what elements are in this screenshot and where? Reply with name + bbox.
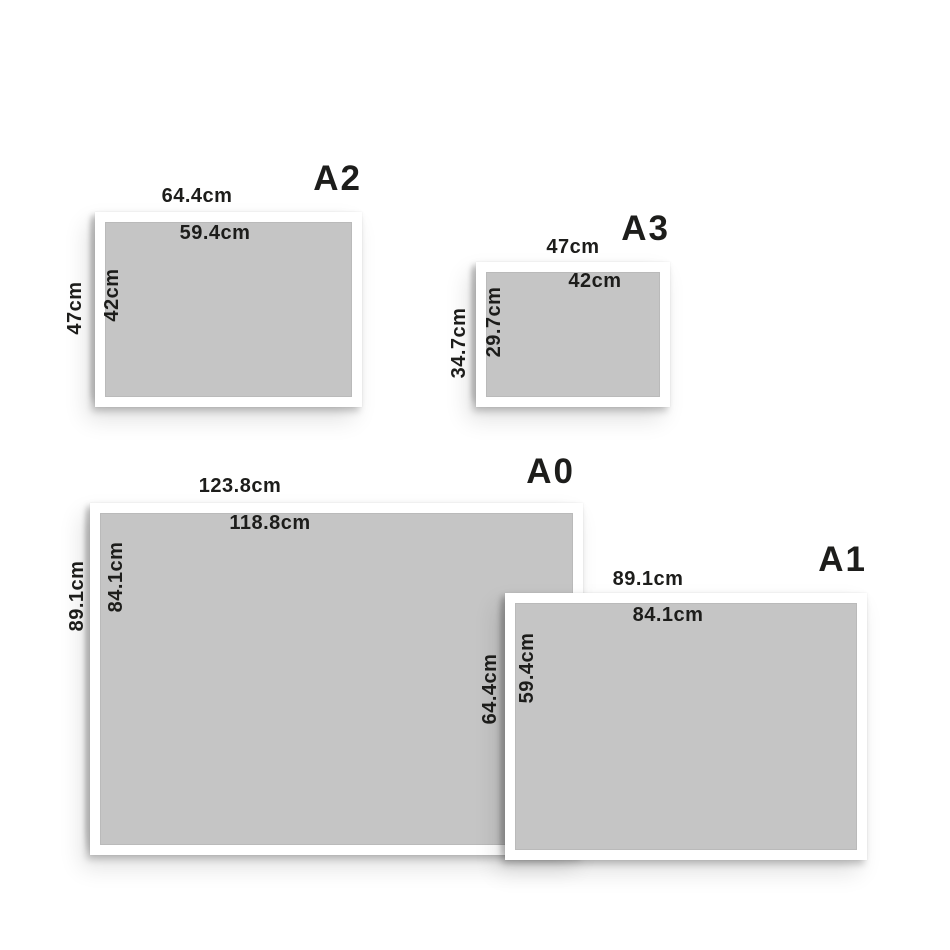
print-width-label-a0: 118.8cm [220,512,320,534]
paper-group-a2: A2 64.4cm 59.4cm 47cm 42cm [95,212,362,407]
paper-size-title-a2: A2 [313,160,362,198]
paper-group-a3: A3 47cm 42cm 34.7cm 29.7cm [476,262,670,407]
paper-surface-a1 [515,603,857,850]
print-height-label-a0: 84.1cm [105,532,127,622]
frame-height-label-a1: 64.4cm [479,644,501,734]
frame-width-label-a0: 123.8cm [190,475,290,497]
paper-surface-a2 [105,222,352,397]
paper-frame-a1 [505,593,867,860]
print-height-label-a3: 29.7cm [483,277,505,367]
print-height-label-a2: 42cm [101,250,123,340]
paper-size-title-a3: A3 [621,210,670,248]
paper-size-comparison-diagram: A2 64.4cm 59.4cm 47cm 42cm A3 47cm 42cm … [0,0,950,950]
paper-group-a1: A1 89.1cm 84.1cm 64.4cm 59.4cm [505,593,867,860]
frame-width-label-a1: 89.1cm [598,568,698,590]
print-height-label-a1: 59.4cm [516,623,538,713]
page: { "diagram": { "description": "Framed pr… [0,0,950,950]
paper-size-title-a1: A1 [818,541,867,579]
print-width-label-a3: 42cm [545,270,645,292]
frame-height-label-a3: 34.7cm [448,298,470,388]
paper-size-title-a0: A0 [526,453,575,491]
frame-height-label-a0: 89.1cm [66,551,88,641]
print-width-label-a2: 59.4cm [165,222,265,244]
print-width-label-a1: 84.1cm [618,604,718,626]
frame-width-label-a2: 64.4cm [147,185,247,207]
frame-height-label-a2: 47cm [64,263,86,353]
frame-width-label-a3: 47cm [523,236,623,258]
